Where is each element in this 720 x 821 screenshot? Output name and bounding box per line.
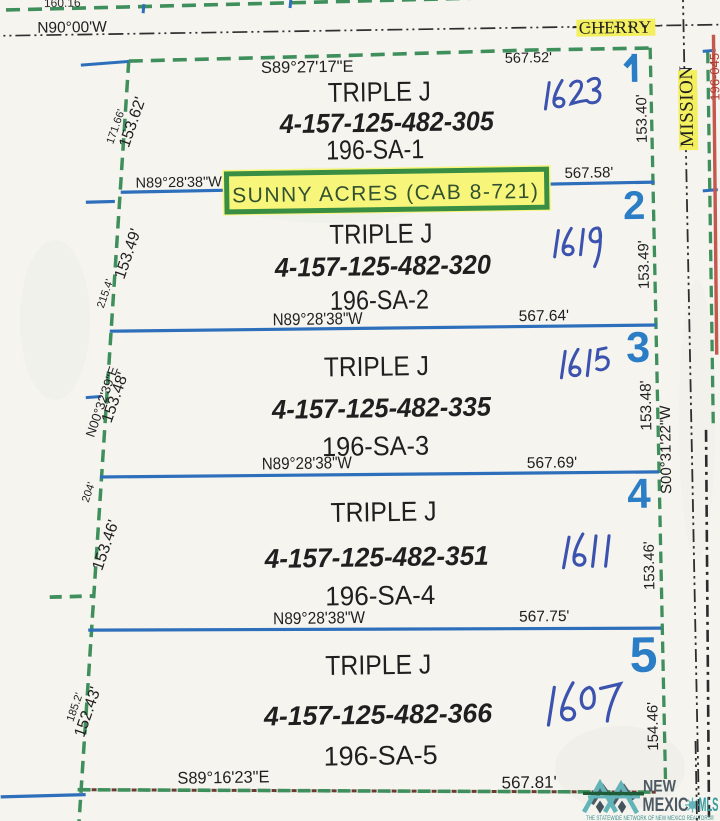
svg-text:TRIPLE J: TRIPLE J bbox=[324, 350, 429, 383]
svg-text:196-045: 196-045 bbox=[707, 53, 720, 101]
svg-text:153.46': 153.46' bbox=[641, 541, 659, 590]
svg-text:567.64': 567.64' bbox=[519, 307, 570, 325]
svg-text:567.52': 567.52' bbox=[505, 50, 553, 67]
svg-text:567.75': 567.75' bbox=[519, 608, 570, 626]
svg-text:NEW: NEW bbox=[643, 777, 677, 796]
svg-text:153.49': 153.49' bbox=[635, 240, 653, 289]
svg-text:3: 3 bbox=[626, 324, 651, 372]
svg-text:153.40': 153.40' bbox=[633, 94, 651, 143]
svg-text:N89°28'38"W: N89°28'38"W bbox=[135, 174, 222, 191]
svg-text:5: 5 bbox=[629, 627, 658, 683]
svg-text:TRIPLE J: TRIPLE J bbox=[330, 495, 436, 528]
svg-text:4-157-125-482-366: 4-157-125-482-366 bbox=[263, 698, 493, 731]
svg-text:MISSION: MISSION bbox=[676, 65, 698, 147]
svg-text:4-157-125-482-320: 4-157-125-482-320 bbox=[274, 250, 491, 283]
svg-text:TRIPLE J: TRIPLE J bbox=[329, 217, 432, 250]
svg-text:MEXIC: MEXIC bbox=[643, 795, 689, 816]
svg-text:567.81': 567.81' bbox=[501, 773, 557, 793]
svg-text:567.58': 567.58' bbox=[564, 164, 613, 182]
svg-text:4: 4 bbox=[627, 470, 652, 517]
svg-text:N89°28'38"W: N89°28'38"W bbox=[262, 453, 352, 473]
svg-text:196-SA-5: 196-SA-5 bbox=[323, 740, 437, 772]
svg-text:MLS: MLS bbox=[699, 795, 719, 816]
svg-text:153.48': 153.48' bbox=[638, 380, 656, 431]
svg-text:THE STATEWIDE NETWORK OF NEW M: THE STATEWIDE NETWORK OF NEW MEXICO REAL… bbox=[586, 814, 714, 821]
svg-text:SUNNY ACRES (CAB 8-721): SUNNY ACRES (CAB 8-721) bbox=[232, 180, 540, 208]
svg-text:4-157-125-482-351: 4-157-125-482-351 bbox=[264, 541, 489, 574]
svg-text:196-SA-4: 196-SA-4 bbox=[325, 580, 435, 612]
svg-text:4-157-125-482-335: 4-157-125-482-335 bbox=[271, 392, 492, 425]
svg-text:567.69': 567.69' bbox=[527, 454, 578, 472]
svg-text:196-SA-1: 196-SA-1 bbox=[326, 134, 424, 165]
svg-text:2: 2 bbox=[623, 184, 646, 228]
svg-text:S00°31'22"W: S00°31'22"W bbox=[657, 405, 675, 494]
svg-text:S89°16'23"E: S89°16'23"E bbox=[177, 767, 269, 787]
svg-text:TRIPLE J: TRIPLE J bbox=[328, 75, 431, 108]
svg-text:S89°27'17"E: S89°27'17"E bbox=[261, 58, 354, 77]
svg-text:154.46': 154.46' bbox=[644, 702, 662, 751]
svg-text:TRIPLE J: TRIPLE J bbox=[325, 648, 431, 681]
svg-text:160.16: 160.16 bbox=[44, 0, 81, 10]
svg-text:N89°28'38"W: N89°28'38"W bbox=[273, 608, 365, 628]
svg-text:N89°28'38"W: N89°28'38"W bbox=[273, 309, 363, 329]
